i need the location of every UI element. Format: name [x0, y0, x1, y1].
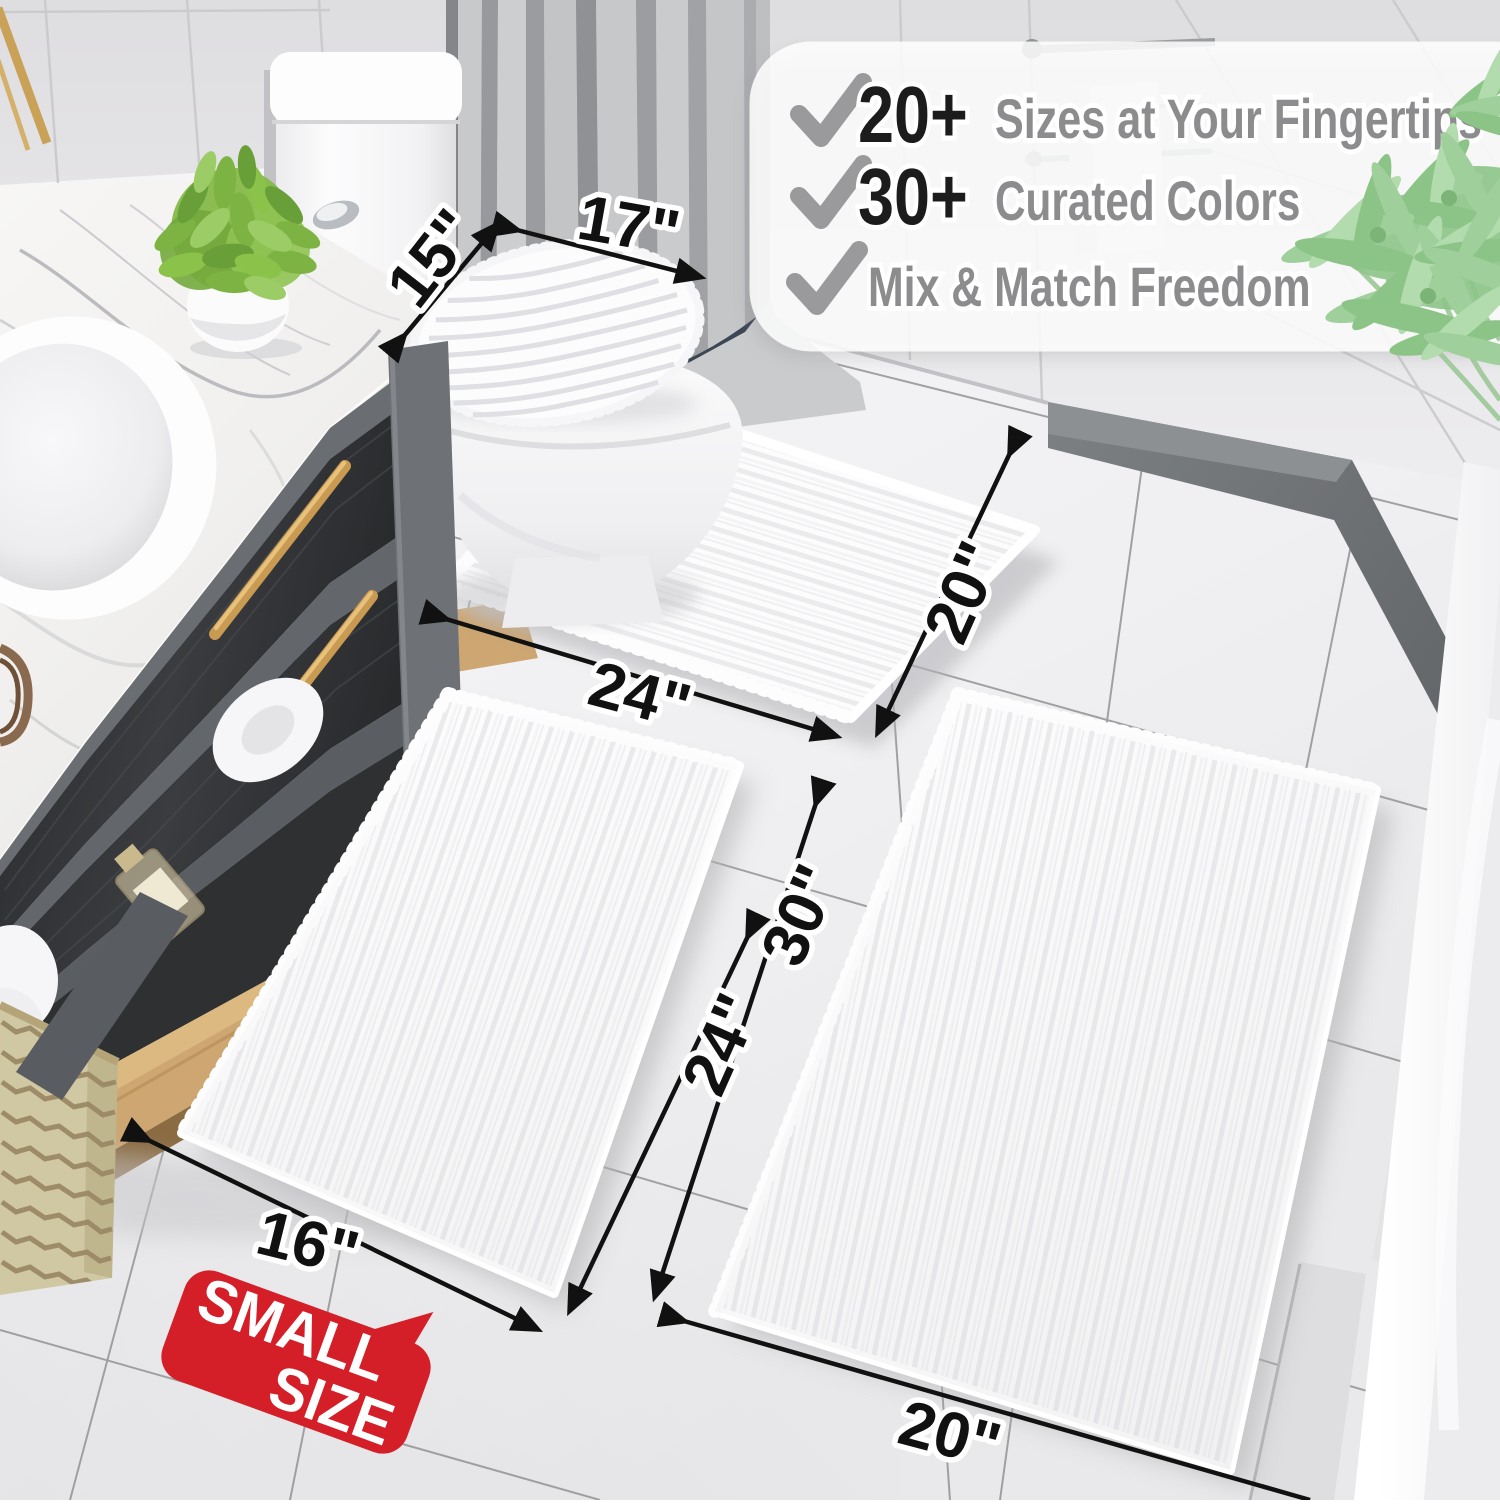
svg-text:30+: 30+ — [858, 153, 968, 242]
svg-text:20+: 20+ — [858, 71, 968, 160]
svg-text:Mix & Match Freedom: Mix & Match Freedom — [868, 255, 1311, 318]
svg-text:Curated Colors: Curated Colors — [995, 169, 1300, 232]
svg-text:Sizes at Your Fingertips: Sizes at Your Fingertips — [995, 88, 1482, 151]
